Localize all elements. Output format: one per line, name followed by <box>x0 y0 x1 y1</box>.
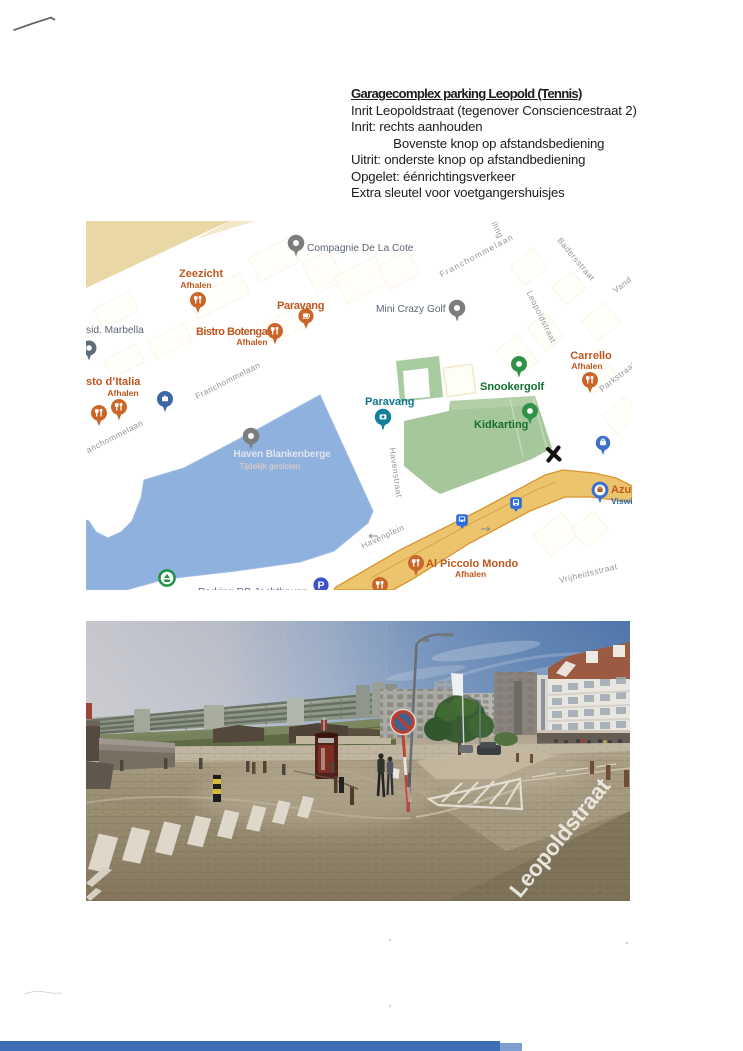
svg-text:sto d’Italia: sto d’Italia <box>86 376 141 388</box>
svg-text:Afhalen: Afhalen <box>180 280 211 290</box>
svg-text:Zeezicht: Zeezicht <box>179 268 223 280</box>
svg-text:Paravang: Paravang <box>365 396 415 408</box>
svg-text:Compagnie De La Cote: Compagnie De La Cote <box>307 243 414 254</box>
svg-text:Haven Blankenberge: Haven Blankenberge <box>233 449 331 460</box>
svg-text:sid. Marbella: sid. Marbella <box>86 325 144 336</box>
svg-text:Afhalen: Afhalen <box>236 337 267 347</box>
svg-text:Parking DB Jachthaven: Parking DB Jachthaven <box>198 586 308 590</box>
svg-text:Tijdelijk gesloten: Tijdelijk gesloten <box>239 461 300 471</box>
svg-text:Kidkarting: Kidkarting <box>474 419 528 431</box>
svg-text:Azur: Azur <box>611 484 632 496</box>
svg-text:Mini Crazy Golf: Mini Crazy Golf <box>376 304 446 315</box>
svg-text:Viswi: Viswi <box>611 496 632 506</box>
svg-text:Snookergolf: Snookergolf <box>480 381 545 393</box>
svg-text:P: P <box>317 580 324 590</box>
svg-text:Afhalen: Afhalen <box>571 361 602 371</box>
svg-text:Paravang: Paravang <box>277 300 324 312</box>
svg-text:Afhalen: Afhalen <box>455 569 486 579</box>
svg-text:Afhalen: Afhalen <box>107 388 138 398</box>
